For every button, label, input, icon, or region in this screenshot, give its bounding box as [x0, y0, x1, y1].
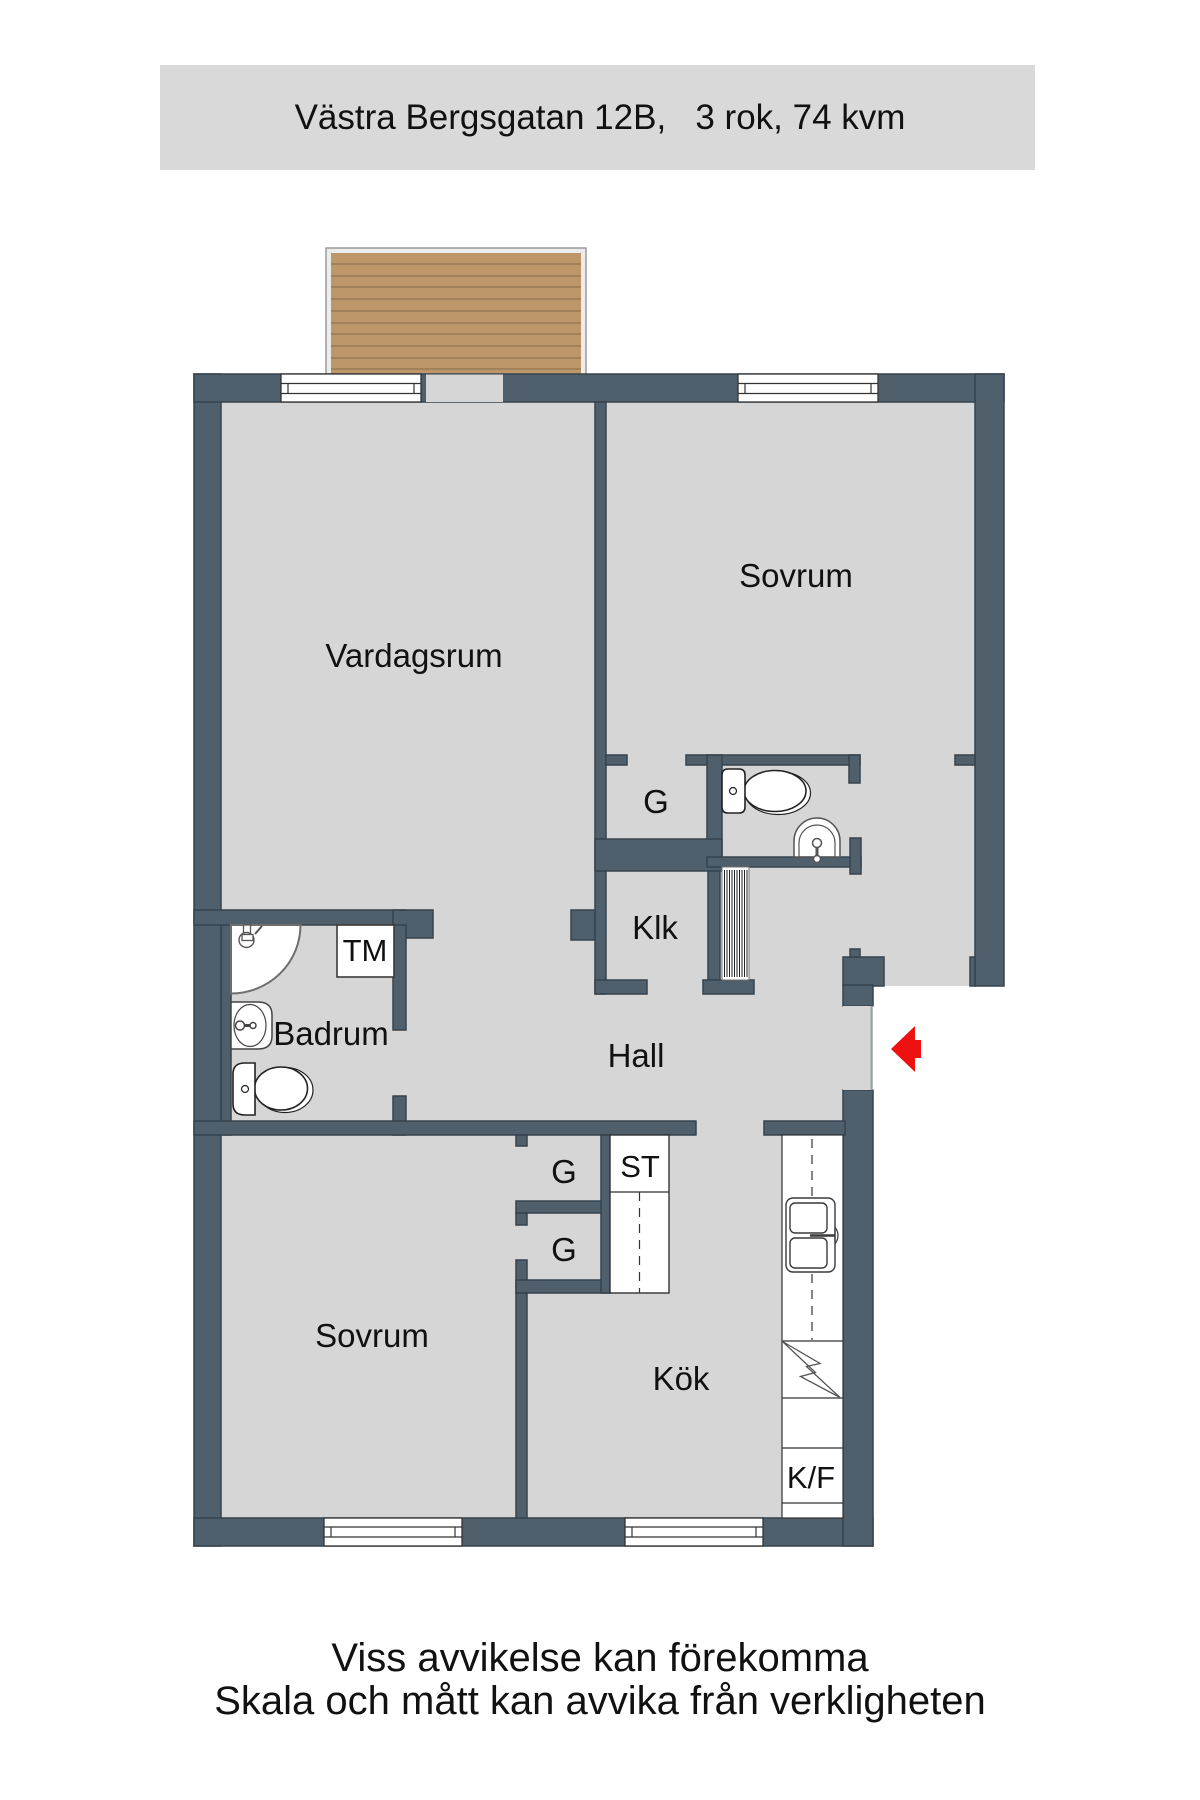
svg-text:Västra Bergsgatan 12B, 3 rok: Västra Bergsgatan 12B, 3 rok, 74 kvm — [295, 98, 906, 137]
svg-text:ST: ST — [620, 1149, 660, 1184]
svg-text:Badrum: Badrum — [273, 1015, 389, 1052]
svg-text:K/F: K/F — [787, 1460, 835, 1495]
svg-text:Sovrum: Sovrum — [739, 557, 853, 594]
svg-text:TM: TM — [343, 933, 388, 968]
svg-text:Klk: Klk — [632, 909, 678, 946]
svg-text:G: G — [551, 1231, 577, 1268]
svg-text:G: G — [643, 783, 669, 820]
svg-text:Sovrum: Sovrum — [315, 1317, 429, 1354]
svg-text:Viss avvikelse kan förekomma: Viss avvikelse kan förekomma — [331, 1636, 869, 1680]
svg-text:Vardagsrum: Vardagsrum — [325, 637, 502, 674]
svg-text:Kök: Kök — [653, 1360, 710, 1397]
svg-text:Skala och mått kan avvika från: Skala och mått kan avvika från verklighe… — [214, 1679, 986, 1723]
svg-text:Hall: Hall — [608, 1037, 665, 1074]
svg-text:G: G — [551, 1153, 577, 1190]
